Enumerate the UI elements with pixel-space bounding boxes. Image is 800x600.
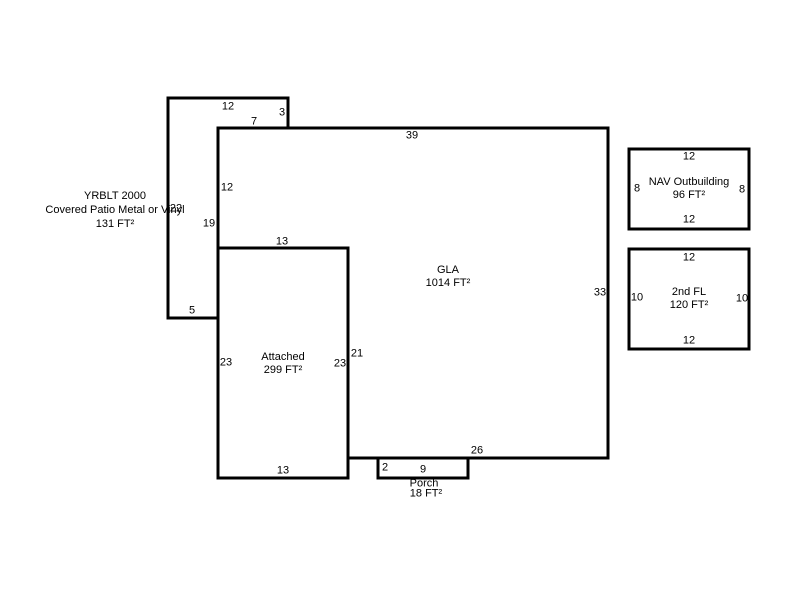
patio-area-text: 131 FT² <box>45 217 184 231</box>
patio-yrblt-text: YRBLT 2000 <box>45 189 184 203</box>
second-floor-label: 2nd FL 120 FT² <box>670 286 709 312</box>
gla-dim-left-upper: 12 <box>221 182 233 195</box>
patio-dim-bottom: 5 <box>189 305 195 318</box>
attached-area-text: 299 FT² <box>261 364 304 377</box>
nav-name-text: NAV Outbuilding <box>649 176 730 189</box>
patio-dim-right: 19 <box>203 218 215 231</box>
second-floor-dim-left: 10 <box>631 292 643 305</box>
nav-dim-left: 8 <box>634 183 640 196</box>
patio-dim-step-top: 7 <box>251 116 257 129</box>
covered-patio-outline <box>168 98 288 318</box>
gla-dim-right: 33 <box>594 287 606 300</box>
second-floor-dim-right: 10 <box>736 293 748 306</box>
gla-dim-notch-right: 21 <box>351 348 363 361</box>
porch-dim-top: 9 <box>420 464 426 477</box>
nav-outbuilding-label: NAV Outbuilding 96 FT² <box>649 176 730 202</box>
nav-dim-right: 8 <box>739 184 745 197</box>
second-floor-dim-top: 12 <box>683 252 695 265</box>
nav-dim-bottom: 12 <box>683 214 695 227</box>
gla-dim-notch-top: 13 <box>276 236 288 249</box>
attached-dim-left: 23 <box>220 357 232 370</box>
sketch-page: 12 3 7 22 19 5 YRBLT 2000 Covered Patio … <box>0 0 800 600</box>
gla-dim-bottom: 26 <box>471 445 483 458</box>
second-floor-dim-bottom: 12 <box>683 335 695 348</box>
second-floor-name-text: 2nd FL <box>670 286 709 299</box>
attached-dim-bottom: 13 <box>277 465 289 478</box>
nav-area-text: 96 FT² <box>649 189 730 202</box>
attached-name-text: Attached <box>261 351 304 364</box>
porch-dim-left: 2 <box>382 462 388 475</box>
gla-outline <box>218 128 608 458</box>
patio-name-text: Covered Patio Metal or Vinyl <box>45 203 184 217</box>
second-floor-area-text: 120 FT² <box>670 299 709 312</box>
gla-dim-top: 39 <box>406 130 418 143</box>
patio-dim-step-right: 3 <box>279 107 285 120</box>
gla-label: GLA 1014 FT² <box>426 264 471 290</box>
attached-label: Attached 299 FT² <box>261 351 304 377</box>
attached-dim-right: 23 <box>334 358 346 371</box>
covered-patio-label: YRBLT 2000 Covered Patio Metal or Vinyl … <box>45 189 184 231</box>
gla-area-text: 1014 FT² <box>426 277 471 290</box>
gla-name-text: GLA <box>426 264 471 277</box>
patio-dim-top: 12 <box>222 101 234 114</box>
nav-dim-top: 12 <box>683 151 695 164</box>
porch-area-text: 18 FT² <box>410 488 442 501</box>
